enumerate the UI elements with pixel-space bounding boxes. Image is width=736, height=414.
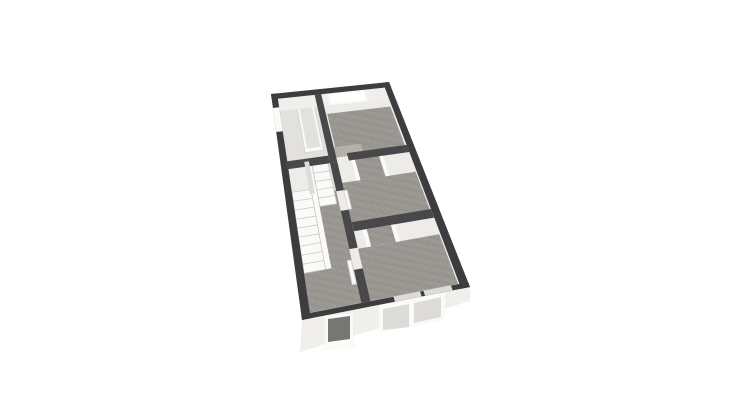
floor-plan-3d xyxy=(0,0,736,414)
small-window-glass xyxy=(328,316,350,342)
floor-plan-canvas xyxy=(0,0,736,414)
